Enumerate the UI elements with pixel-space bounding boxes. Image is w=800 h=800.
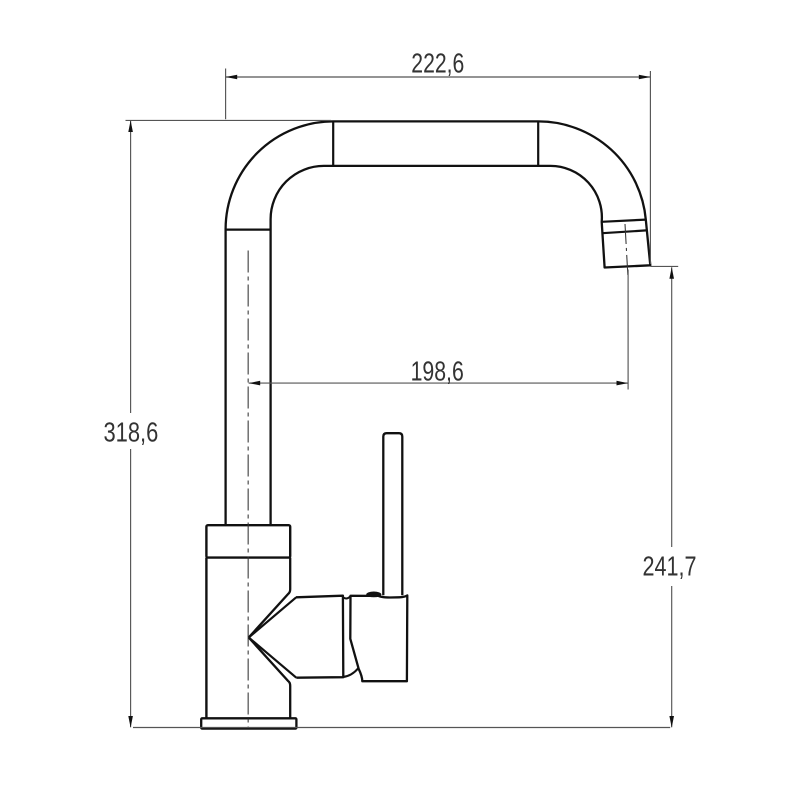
svg-text:198,6: 198,6 [411, 356, 464, 387]
svg-text:241,7: 241,7 [643, 551, 697, 582]
svg-text:222,6: 222,6 [411, 48, 464, 79]
svg-text:318,6: 318,6 [104, 416, 159, 447]
